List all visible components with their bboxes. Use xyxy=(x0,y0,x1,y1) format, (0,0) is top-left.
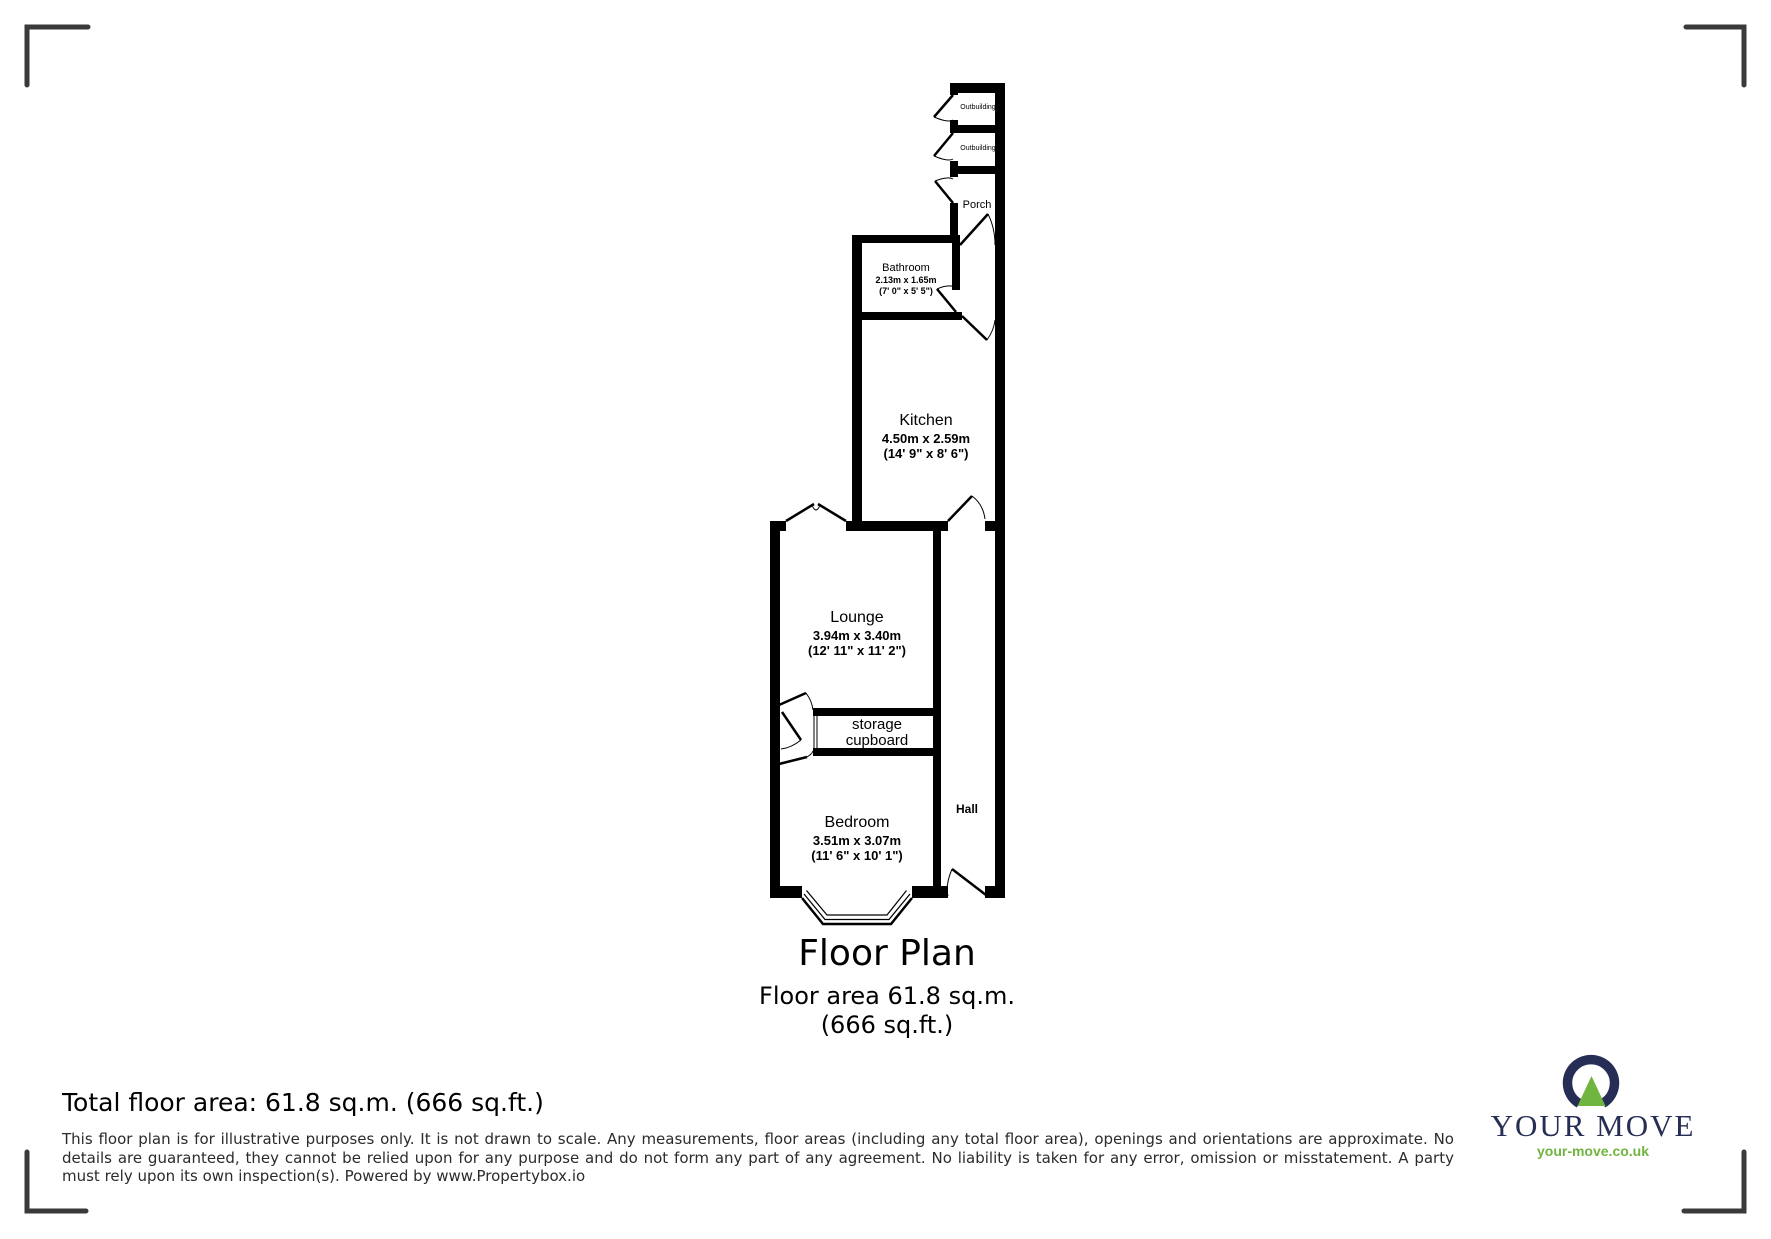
room-label-storage-cupboard: storage cupboard xyxy=(846,717,909,749)
lounge-dims-imperial: (12' 11" x 11' 2") xyxy=(808,643,906,658)
bedroom-name: Bedroom xyxy=(811,814,903,833)
kitchen-dims-imperial: (14' 9" x 8' 6") xyxy=(882,446,970,461)
floor-area-line: Floor area 61.8 sq.m. xyxy=(759,982,1015,1010)
storage-line2: cupboard xyxy=(846,733,909,749)
floor-area-sqft: (666 sq.ft.) xyxy=(821,1011,954,1039)
disclaimer-text: This floor plan is for illustrative purp… xyxy=(62,1130,1454,1186)
room-label-outbuilding-2: Outbuilding xyxy=(960,145,995,153)
bedroom-dims-imperial: (11' 6" x 10' 1") xyxy=(811,848,903,863)
room-label-porch: Porch xyxy=(963,199,992,212)
your-move-logo-mark-icon xyxy=(1568,1060,1615,1106)
bathroom-dims-imperial: (7' 0" x 5' 5") xyxy=(875,286,936,297)
storage-line1: storage xyxy=(846,717,909,733)
porch-name: Porch xyxy=(963,199,992,211)
brand-name: YOUR MOVE xyxy=(1491,1108,1696,1144)
kitchen-name: Kitchen xyxy=(882,412,970,431)
total-floor-area: Total floor area: 61.8 sq.m. (666 sq.ft.… xyxy=(62,1088,544,1117)
bathroom-name: Bathroom xyxy=(875,262,936,275)
bay-window xyxy=(802,891,912,925)
room-label-lounge: Lounge 3.94m x 3.40m (12' 11" x 11' 2") xyxy=(808,609,906,659)
lounge-name: Lounge xyxy=(808,609,906,628)
room-label-bathroom: Bathroom 2.13m x 1.65m (7' 0" x 5' 5") xyxy=(875,262,936,296)
kitchen-dims-metric: 4.50m x 2.59m xyxy=(882,431,970,446)
outbuilding1-name: Outbuilding xyxy=(960,104,995,111)
floorplan-page: Outbuilding Outbuilding Porch Bathroom 2… xyxy=(0,0,1771,1239)
room-label-bedroom: Bedroom 3.51m x 3.07m (11' 6" x 10' 1") xyxy=(811,814,903,864)
bedroom-dims-metric: 3.51m x 3.07m xyxy=(811,833,903,848)
lounge-dims-metric: 3.94m x 3.40m xyxy=(808,628,906,643)
room-label-kitchen: Kitchen 4.50m x 2.59m (14' 9" x 8' 6") xyxy=(882,412,970,462)
page-title: Floor Plan xyxy=(798,933,976,975)
room-label-hall: Hall xyxy=(956,802,978,816)
brand-url: your-move.co.uk xyxy=(1537,1143,1649,1159)
bathroom-dims-metric: 2.13m x 1.65m xyxy=(875,275,936,286)
hall-name: Hall xyxy=(956,802,978,816)
room-label-outbuilding-1: Outbuilding xyxy=(960,104,995,112)
outbuilding2-name: Outbuilding xyxy=(960,145,995,152)
